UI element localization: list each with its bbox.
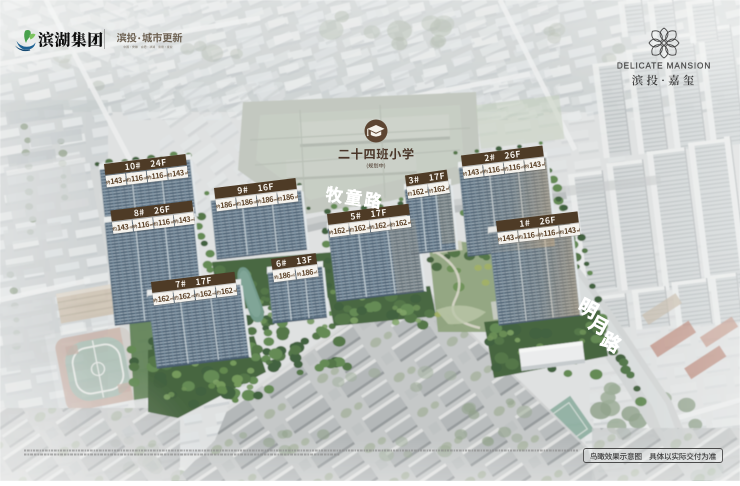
svg-text:DELICATE MANSION: DELICATE MANSION [617,62,711,71]
